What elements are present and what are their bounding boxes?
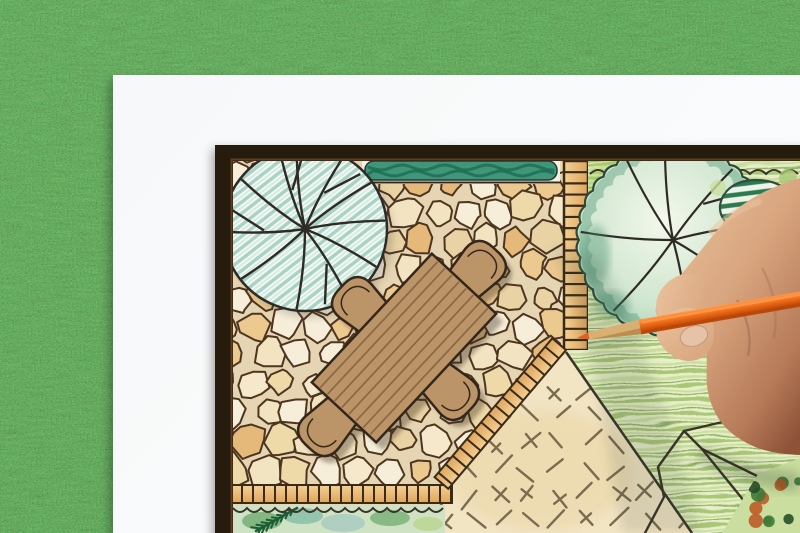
fir-needle bbox=[251, 527, 260, 528]
plan-drawing bbox=[199, 128, 800, 533]
fir-needle bbox=[262, 522, 270, 523]
flagstone bbox=[248, 455, 281, 489]
bed-wash bbox=[321, 514, 365, 532]
fir-needle bbox=[267, 520, 274, 521]
planting-dot bbox=[783, 514, 793, 524]
fir-needle bbox=[272, 517, 279, 518]
garden-plan-photo: Landscape architect drawing a backyard g… bbox=[0, 0, 800, 533]
planting-dot bbox=[764, 517, 772, 525]
bed-wash bbox=[413, 517, 443, 531]
fir-needle bbox=[277, 515, 283, 516]
photo-scene: Landscape architect drawing a backyard g… bbox=[0, 0, 800, 533]
planting-dot bbox=[749, 514, 763, 528]
foliage-bump bbox=[710, 180, 726, 196]
fir-needle bbox=[256, 525, 265, 526]
planting-dot bbox=[749, 502, 762, 515]
edging-horizontal bbox=[231, 485, 452, 503]
planting-bed-bottom bbox=[231, 505, 445, 533]
bed-wash bbox=[370, 510, 410, 526]
hedge-band bbox=[362, 158, 560, 184]
